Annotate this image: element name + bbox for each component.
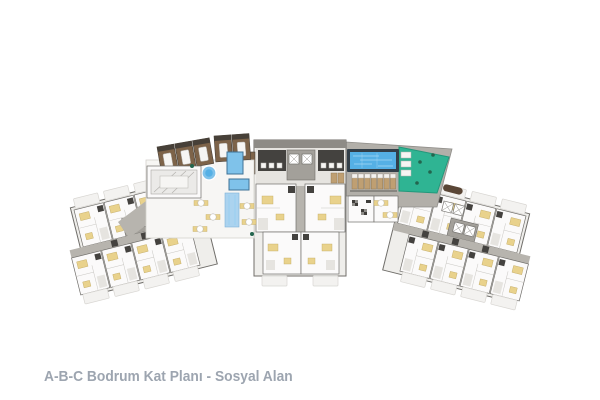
apartment-unit	[301, 232, 339, 274]
plunge-pool	[229, 179, 249, 190]
jacuzzi	[202, 166, 216, 180]
apartment-unit	[305, 184, 345, 232]
block-b-core	[246, 140, 346, 286]
terrace-plant	[428, 170, 432, 174]
plan-caption: A-B-C Bodrum Kat Planı - Sosyal Alan	[44, 368, 293, 385]
hammam-room	[147, 166, 201, 198]
apartment-unit	[256, 184, 296, 232]
terrace-mat	[401, 170, 411, 176]
game-room	[348, 196, 398, 222]
sunbeds-row	[352, 174, 396, 189]
terrace-mat	[401, 152, 411, 158]
floor-plan-page: A-B-C Bodrum Kat Planı - Sosyal Alan	[0, 0, 600, 400]
plunge-pool	[227, 152, 243, 174]
terrace-plant	[418, 160, 422, 164]
floor-plan-image	[0, 0, 600, 400]
carpet	[225, 193, 239, 227]
terrace-plant	[431, 153, 435, 157]
terrace-mat	[401, 161, 411, 167]
swimming-pool	[347, 149, 399, 172]
apartment-unit	[263, 232, 301, 274]
terrace-plant	[415, 181, 419, 185]
